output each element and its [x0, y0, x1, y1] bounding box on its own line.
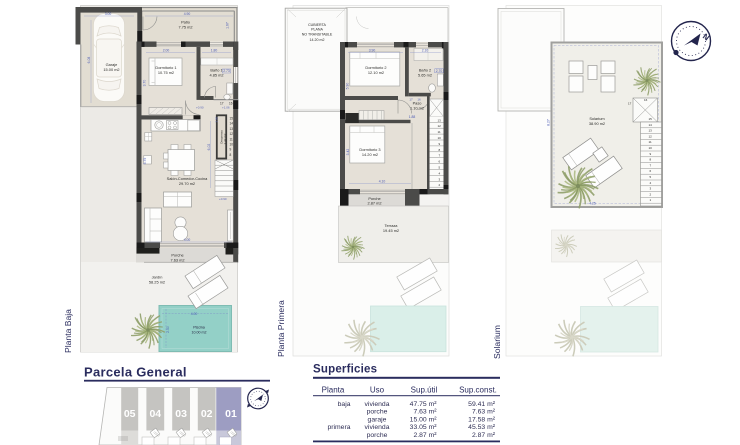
svg-text:12: 12	[649, 134, 653, 138]
svg-text:13: 13	[649, 129, 653, 133]
svg-text:17.58 m²: 17.58 m²	[468, 416, 496, 423]
svg-text:16: 16	[417, 98, 421, 102]
svg-text:4.00: 4.00	[191, 312, 198, 316]
svg-text:NO TRANSITABLE: NO TRANSITABLE	[302, 32, 333, 36]
svg-text:8.27: 8.27	[546, 119, 550, 126]
svg-text:Sup.útil: Sup.útil	[411, 386, 438, 395]
svg-text:11: 11	[649, 140, 652, 144]
svg-text:2.87 m²: 2.87 m²	[413, 432, 437, 439]
svg-text:7.75 m2: 7.75 m2	[178, 24, 192, 29]
svg-text:58.25 m2: 58.25 m2	[149, 279, 165, 284]
svg-text:29.70 m2: 29.70 m2	[179, 181, 195, 186]
svg-text:Solarium: Solarium	[492, 325, 502, 359]
svg-text:2.70: 2.70	[436, 69, 443, 73]
svg-text:01: 01	[225, 408, 237, 420]
svg-text:8: 8	[230, 153, 232, 157]
svg-text:11: 11	[230, 137, 234, 141]
svg-text:14.20 m2: 14.20 m2	[362, 152, 378, 157]
svg-text:47.75 m²: 47.75 m²	[410, 401, 438, 408]
svg-text:13: 13	[230, 127, 234, 131]
svg-text:Parcela General: Parcela General	[84, 365, 187, 380]
svg-text:45.53 m²: 45.53 m²	[468, 424, 496, 431]
svg-text:1.80: 1.80	[211, 49, 218, 53]
svg-text:3.06: 3.06	[215, 116, 219, 122]
svg-text:14.20 m2: 14.20 m2	[310, 38, 325, 42]
svg-text:7.63 m²: 7.63 m²	[413, 409, 437, 416]
svg-text:Uso: Uso	[370, 386, 385, 395]
svg-text:6.02: 6.02	[207, 144, 211, 151]
svg-text:13: 13	[438, 118, 442, 122]
svg-text:porche: porche	[367, 409, 388, 416]
svg-text:15.00 m2: 15.00 m2	[103, 67, 119, 72]
svg-text:59.41 m²: 59.41 m²	[468, 401, 496, 408]
svg-text:14: 14	[230, 122, 234, 126]
svg-text:garaje: garaje	[368, 416, 387, 423]
svg-text:2.10: 2.10	[422, 49, 429, 53]
svg-text:12: 12	[438, 124, 442, 128]
svg-text:10.00 m2: 10.00 m2	[192, 331, 207, 335]
svg-text:1.88: 1.88	[409, 115, 416, 119]
svg-text:5.75: 5.75	[143, 158, 147, 165]
svg-text:Piscina: Piscina	[193, 326, 205, 330]
svg-text:19.45 m2: 19.45 m2	[383, 228, 399, 233]
svg-text:11: 11	[438, 130, 441, 134]
svg-text:16: 16	[644, 98, 648, 102]
svg-text:2.50: 2.50	[166, 326, 170, 333]
svg-text:15: 15	[230, 117, 234, 121]
svg-text:14: 14	[649, 123, 653, 127]
svg-text:33.05 m²: 33.05 m²	[410, 424, 438, 431]
svg-text:vivienda: vivienda	[365, 401, 390, 408]
svg-text:vivienda: vivienda	[365, 424, 390, 431]
svg-text:PLANA: PLANA	[311, 28, 323, 32]
svg-text:4.90: 4.90	[184, 12, 191, 16]
svg-text:+0.90: +0.90	[219, 197, 227, 201]
svg-text:1.67: 1.67	[226, 22, 230, 29]
svg-text:3.90: 3.90	[369, 49, 376, 53]
svg-text:Planta: Planta	[322, 386, 345, 395]
svg-text:Planta Primera: Planta Primera	[276, 300, 286, 357]
svg-text:9: 9	[230, 148, 232, 152]
svg-text:04: 04	[149, 408, 161, 420]
svg-text:17: 17	[409, 98, 413, 102]
svg-text:4.10: 4.10	[379, 180, 386, 184]
svg-text:6.08: 6.08	[87, 57, 91, 64]
svg-text:2.87 m2: 2.87 m2	[367, 200, 381, 205]
svg-text:+0.90: +0.90	[196, 106, 204, 110]
svg-text:baja: baja	[338, 401, 351, 408]
svg-text:3.70: 3.70	[143, 80, 147, 87]
svg-text:12.10 m2: 12.10 m2	[368, 70, 384, 75]
svg-text:primera: primera	[327, 424, 350, 431]
svg-text:4.25: 4.25	[589, 201, 596, 205]
svg-text:3.00: 3.00	[105, 12, 112, 16]
svg-text:2.42 m2: 2.42 m2	[223, 133, 227, 144]
svg-text:05: 05	[124, 408, 136, 420]
svg-text:1.10 m2: 1.10 m2	[410, 105, 424, 110]
svg-text:3.42: 3.42	[346, 149, 350, 156]
svg-text:5.90: 5.90	[346, 83, 350, 90]
svg-text:38.90 m2: 38.90 m2	[589, 121, 605, 126]
svg-text:10: 10	[649, 146, 653, 150]
svg-text:Superficies: Superficies	[313, 364, 377, 376]
svg-text:7.63 m2: 7.63 m2	[170, 257, 184, 262]
svg-text:7.63 m²: 7.63 m²	[472, 409, 496, 416]
svg-text:15.00 m²: 15.00 m²	[410, 416, 438, 423]
svg-text:10.75 m2: 10.75 m2	[158, 70, 174, 75]
svg-text:10: 10	[230, 143, 234, 147]
svg-text:12: 12	[230, 132, 234, 136]
svg-text:03: 03	[175, 408, 187, 420]
svg-text:4.85 m2: 4.85 m2	[209, 72, 223, 77]
svg-text:17: 17	[628, 102, 632, 106]
svg-text:2.00: 2.00	[163, 49, 170, 53]
svg-text:5.65 m2: 5.65 m2	[418, 72, 432, 77]
svg-text:Planta Baja: Planta Baja	[63, 309, 73, 353]
svg-text:02: 02	[201, 408, 213, 420]
svg-text:Sup.const.: Sup.const.	[459, 386, 497, 395]
svg-text:15: 15	[649, 117, 653, 121]
svg-text:CUBIERTA: CUBIERTA	[308, 23, 326, 27]
svg-text:2.87 m²: 2.87 m²	[472, 432, 496, 439]
svg-text:porche: porche	[367, 432, 388, 439]
svg-text:2.73: 2.73	[223, 69, 230, 73]
svg-text:+1.06: +1.06	[222, 106, 230, 110]
svg-text:4.00: 4.00	[184, 238, 191, 242]
svg-text:10: 10	[438, 136, 442, 140]
